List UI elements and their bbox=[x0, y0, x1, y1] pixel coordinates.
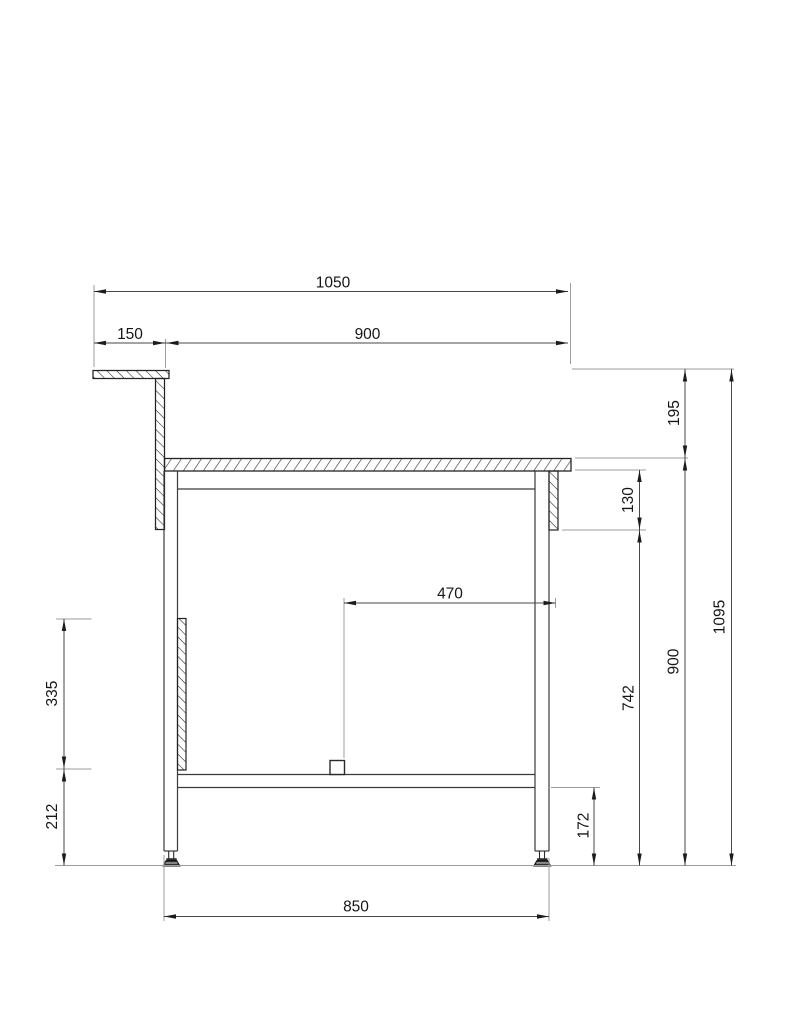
svg-text:172: 172 bbox=[576, 813, 593, 839]
svg-text:850: 850 bbox=[343, 899, 369, 916]
svg-text:742: 742 bbox=[621, 685, 638, 711]
svg-text:195: 195 bbox=[666, 400, 683, 426]
svg-text:470: 470 bbox=[437, 586, 463, 603]
svg-text:335: 335 bbox=[44, 681, 61, 707]
svg-text:212: 212 bbox=[44, 804, 61, 830]
svg-text:900: 900 bbox=[666, 648, 683, 674]
svg-text:1050: 1050 bbox=[316, 275, 351, 292]
svg-text:130: 130 bbox=[620, 487, 637, 513]
svg-text:150: 150 bbox=[117, 326, 143, 343]
svg-text:900: 900 bbox=[355, 326, 381, 343]
svg-text:1095: 1095 bbox=[712, 600, 729, 634]
